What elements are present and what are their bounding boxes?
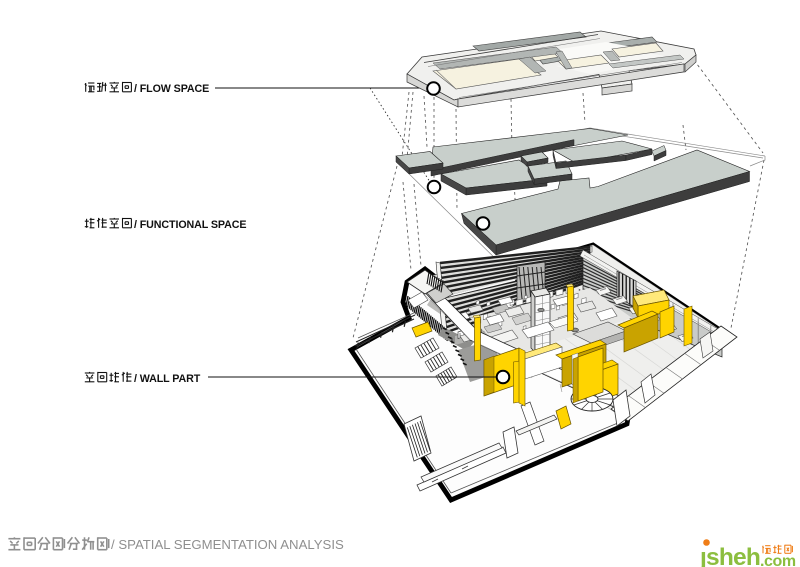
svg-text:/ FLOW SPACE: / FLOW SPACE [134,83,209,95]
svg-text:/ SPATIAL SEGMENTATION ANALYSI: / SPATIAL SEGMENTATION ANALYSIS [111,537,344,552]
svg-text:.com: .com [760,553,796,567]
svg-text:/ WALL PART: / WALL PART [134,373,201,385]
svg-text:/ FUNCTIONAL SPACE: / FUNCTIONAL SPACE [134,219,246,231]
